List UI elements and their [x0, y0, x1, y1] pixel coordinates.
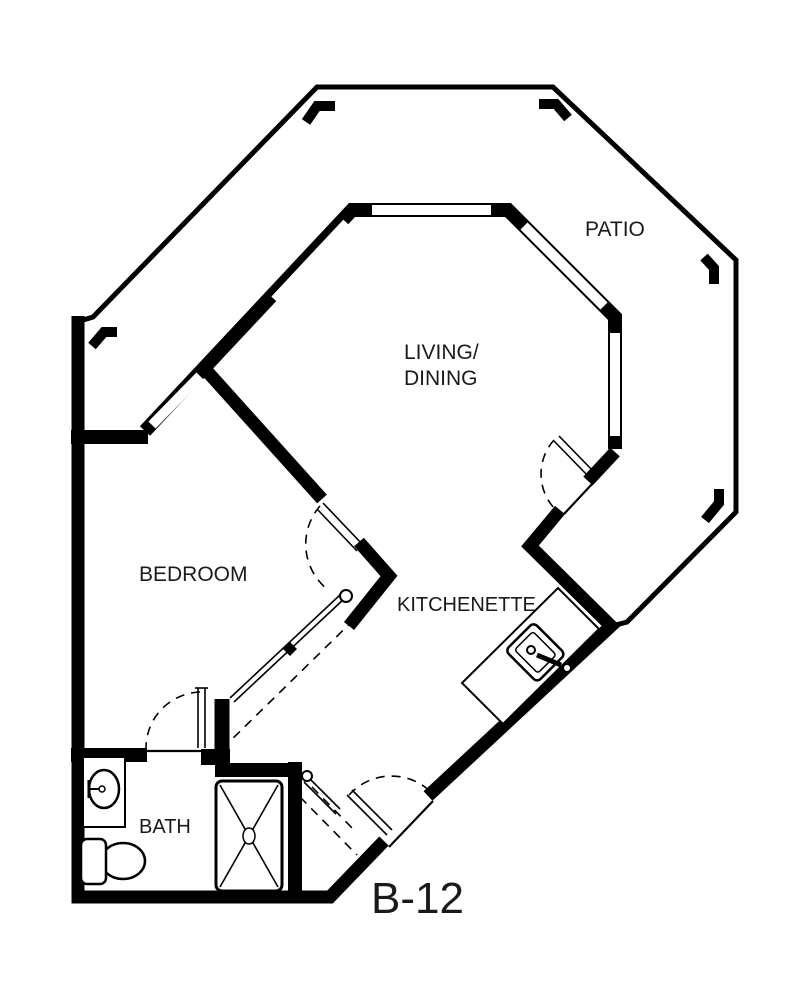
- bedroom-window: [152, 376, 200, 425]
- corner-mark-icon: [704, 257, 714, 284]
- room-label-living-line2: DINING: [404, 367, 478, 390]
- bathroom-sink-icon: [83, 757, 125, 827]
- bath-door-swing-arc: [146, 692, 200, 749]
- unit-walls: [71, 210, 615, 897]
- room-label-bath: BATH: [139, 816, 191, 838]
- bedroom-door-swing-arc: [306, 506, 327, 589]
- bedroom-door: [306, 503, 363, 589]
- living-nw-window: [275, 223, 347, 300]
- patio-door: [541, 436, 595, 512]
- bath-door: [146, 688, 208, 749]
- entry-door-swing-arc: [349, 776, 431, 795]
- closet-door: [300, 771, 357, 855]
- entry-door: [347, 776, 431, 835]
- windows: [152, 210, 615, 436]
- toilet-icon: [81, 839, 145, 884]
- shower-icon: [216, 781, 282, 891]
- entry-threshold: [389, 801, 433, 847]
- floor-plan-page: PATIO LIVING/ DINING BEDROOM KITCHENETTE…: [0, 0, 811, 998]
- sliding-door-pivot: [340, 590, 352, 602]
- corner-mark-icon: [306, 106, 335, 122]
- room-label-living-line1: LIVING/: [404, 341, 479, 364]
- sliding-door-track: [222, 597, 377, 749]
- corner-mark-icon: [539, 104, 568, 118]
- floor-plan-drawing: PATIO LIVING/ DINING BEDROOM KITCHENETTE…: [0, 0, 811, 998]
- patio-corner-marks: [92, 104, 719, 520]
- closet-door-pivot: [302, 771, 312, 781]
- patio-door-swing-arc: [541, 440, 558, 512]
- room-label-patio: PATIO: [585, 218, 645, 241]
- unit-number-label: B-12: [371, 874, 464, 923]
- corner-mark-icon: [705, 489, 719, 520]
- corner-mark-icon: [92, 332, 117, 346]
- room-label-bedroom: BEDROOM: [139, 563, 248, 586]
- room-label-kitchenette: KITCHENETTE: [397, 594, 536, 616]
- patio-door-threshold: [564, 483, 593, 514]
